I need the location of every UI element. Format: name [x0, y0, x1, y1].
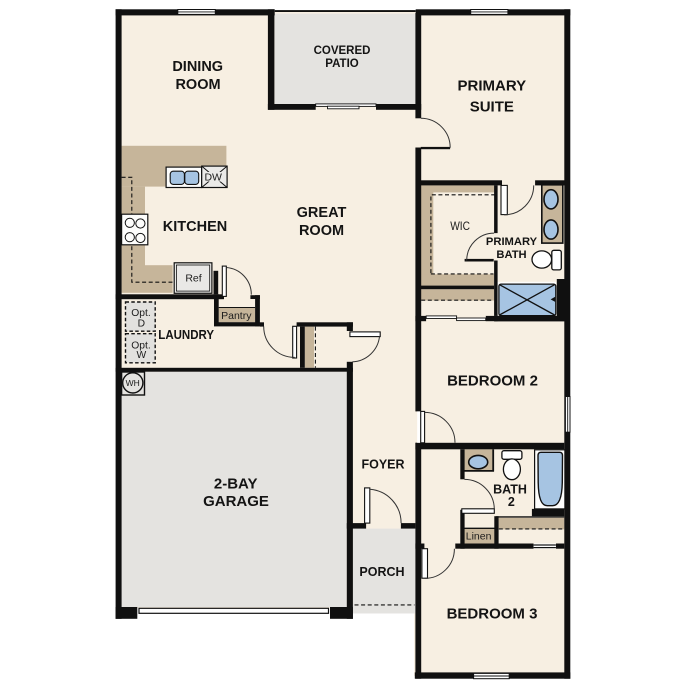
- svg-text:GARAGE: GARAGE: [203, 493, 269, 510]
- svg-text:GREAT: GREAT: [297, 205, 347, 221]
- svg-text:ROOM: ROOM: [299, 223, 344, 239]
- svg-text:Pantry: Pantry: [221, 310, 252, 322]
- svg-text:WIC: WIC: [450, 219, 470, 233]
- svg-text:DINING: DINING: [172, 59, 223, 75]
- svg-text:Ref: Ref: [185, 273, 201, 285]
- svg-text:2-BAY: 2-BAY: [214, 476, 258, 493]
- svg-text:DW: DW: [204, 172, 222, 184]
- svg-text:Opt.: Opt.: [131, 308, 150, 319]
- svg-text:BEDROOM 3: BEDROOM 3: [447, 606, 538, 623]
- svg-text:KITCHEN: KITCHEN: [163, 219, 227, 235]
- svg-text:D: D: [138, 319, 145, 330]
- svg-text:ROOM: ROOM: [175, 77, 220, 93]
- svg-text:SUITE: SUITE: [470, 98, 514, 115]
- svg-text:WH: WH: [126, 378, 140, 388]
- svg-text:BATH: BATH: [496, 249, 526, 261]
- svg-text:BEDROOM 2: BEDROOM 2: [447, 373, 538, 390]
- svg-text:COVERED: COVERED: [314, 45, 371, 57]
- svg-text:2: 2: [508, 495, 515, 509]
- svg-text:LAUNDRY: LAUNDRY: [158, 327, 214, 342]
- svg-text:FOYER: FOYER: [361, 458, 404, 472]
- svg-text:PORCH: PORCH: [359, 565, 404, 579]
- svg-text:PRIMARY: PRIMARY: [457, 77, 526, 94]
- svg-text:W: W: [137, 350, 147, 361]
- svg-text:PRIMARY: PRIMARY: [486, 236, 538, 248]
- svg-text:PATIO: PATIO: [325, 58, 358, 70]
- svg-text:Linen: Linen: [466, 530, 492, 542]
